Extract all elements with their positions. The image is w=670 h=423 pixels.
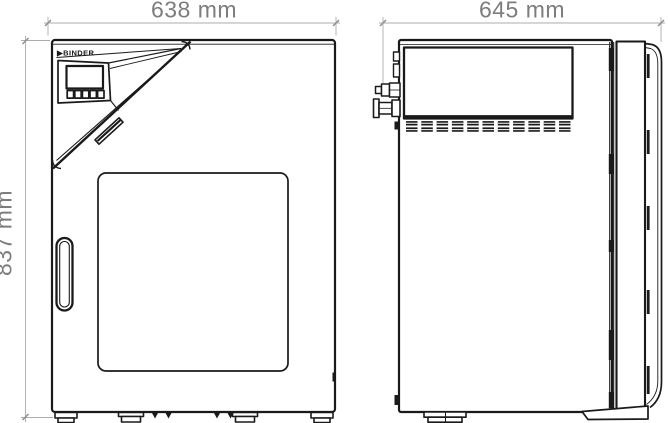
door-skin-dash — [647, 290, 650, 314]
rear-tab — [394, 64, 400, 77]
door-skin-dash — [647, 54, 650, 78]
display-screen — [67, 66, 104, 89]
foot — [58, 418, 74, 423]
door-handle — [57, 238, 73, 311]
height-label: 837 mm — [0, 190, 17, 276]
front-view: ▶BINDER — [52, 40, 336, 423]
port-collar — [392, 100, 400, 117]
port-flange — [374, 99, 380, 118]
controller-button — [67, 91, 73, 99]
hinge-block — [609, 392, 614, 408]
foot — [314, 418, 330, 423]
hinge-block — [609, 330, 614, 360]
foot — [236, 417, 255, 423]
door-skin-dash — [647, 130, 650, 154]
door-skin-dash — [647, 206, 650, 230]
rear-housing — [404, 48, 573, 119]
rear-ports — [374, 83, 401, 118]
controller-button — [98, 91, 104, 99]
foot — [122, 417, 141, 423]
dimension-front-width: 638 mm — [44, 0, 340, 36]
front-width-label: 638 mm — [151, 0, 237, 23]
leveling-tip — [152, 413, 158, 419]
door-handle-outer — [57, 238, 73, 311]
foot — [55, 413, 77, 419]
access-port-large — [374, 99, 401, 118]
leveling-tip — [214, 413, 220, 419]
leveling-tip — [166, 413, 172, 419]
dimension-height: 837 mm — [0, 36, 53, 422]
dimension-drawing: ▶BINDER — [0, 0, 670, 423]
door-window — [98, 173, 288, 371]
hinge-block — [609, 48, 614, 71]
door-latch-mark — [333, 373, 337, 382]
port-tip — [376, 87, 382, 94]
side-depth-label: 645 mm — [479, 0, 565, 23]
hinge-block — [609, 240, 614, 252]
controller-button — [75, 91, 81, 99]
door-slab — [617, 42, 646, 411]
controller-buttons — [67, 91, 104, 99]
rear-tab — [394, 52, 400, 61]
foot — [311, 413, 333, 419]
access-port-small — [376, 83, 401, 97]
technical-drawing-canvas: ▶BINDER — [0, 0, 670, 423]
side-view — [374, 40, 662, 422]
hinge-block — [609, 154, 614, 174]
door-skin-dash — [647, 366, 650, 394]
rear-tab — [395, 122, 400, 130]
rear-tab — [395, 395, 400, 405]
controller-button — [90, 91, 96, 99]
rear-housing-box — [404, 48, 573, 119]
controller-button — [82, 91, 88, 99]
port-nut — [382, 84, 390, 96]
side-foot — [424, 412, 466, 422]
front-feet — [55, 413, 333, 423]
